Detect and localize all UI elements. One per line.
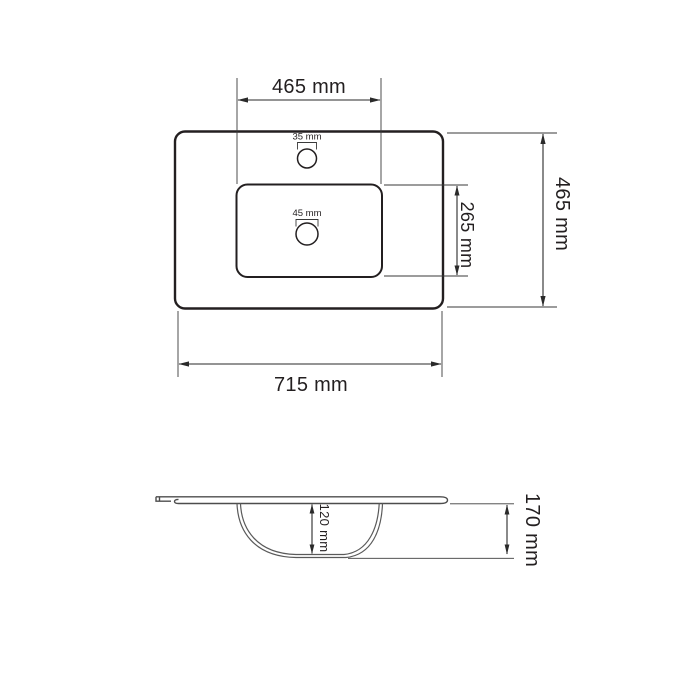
arrowhead-left <box>179 361 190 366</box>
arrowhead-right <box>370 97 381 102</box>
basin-dimension-diagram: 35 mm 45 mm 465 mm 4 <box>0 0 700 700</box>
arrowhead-bottom <box>540 296 545 307</box>
overall-width-label: 715 mm <box>274 374 348 396</box>
basin-cutout-depth-label: 265 mm <box>457 202 477 269</box>
dim-extension-lines <box>178 311 442 377</box>
side-view: 120 mm 170 mm <box>156 493 543 567</box>
drain-hole-callout: 45 mm <box>292 208 321 245</box>
arrowhead-bottom <box>310 545 315 555</box>
countertop-outline <box>175 132 443 309</box>
arrowhead-top <box>455 186 460 196</box>
dim-basin-cutout-depth: 265 mm <box>384 185 477 276</box>
drawing-canvas: 35 mm 45 mm 465 mm 4 <box>0 0 700 700</box>
bowl-outer-profile <box>237 504 383 558</box>
slab-profile <box>156 497 448 504</box>
arrowhead-top <box>540 134 545 145</box>
arrowhead-top <box>505 505 510 515</box>
basin-cutout-width-label: 465 mm <box>272 76 346 98</box>
arrowhead-bottom <box>505 545 510 555</box>
bowl-inner-profile <box>241 504 380 555</box>
dim-extension-lines <box>384 185 468 276</box>
faucet-hole-diameter-label: 35 mm <box>292 132 321 143</box>
dim-overall-width: 715 mm <box>178 311 442 396</box>
drain-hole-diameter-label: 45 mm <box>292 208 321 219</box>
dim-bowl-depth: 120 mm <box>310 504 332 554</box>
top-view: 35 mm 45 mm 465 mm 4 <box>175 76 573 396</box>
arrowhead-left <box>238 97 249 102</box>
overall-height-label: 170 mm <box>521 493 543 567</box>
bowl-inner-depth-label: 120 mm <box>317 504 332 553</box>
arrowhead-right <box>431 361 442 366</box>
overall-depth-label: 465 mm <box>551 177 573 251</box>
basin-cutout-outline <box>237 185 383 278</box>
faucet-hole-callout: 35 mm <box>292 132 321 169</box>
faucet-hole <box>298 149 317 168</box>
arrowhead-top <box>310 504 315 514</box>
drain-hole <box>296 223 318 245</box>
